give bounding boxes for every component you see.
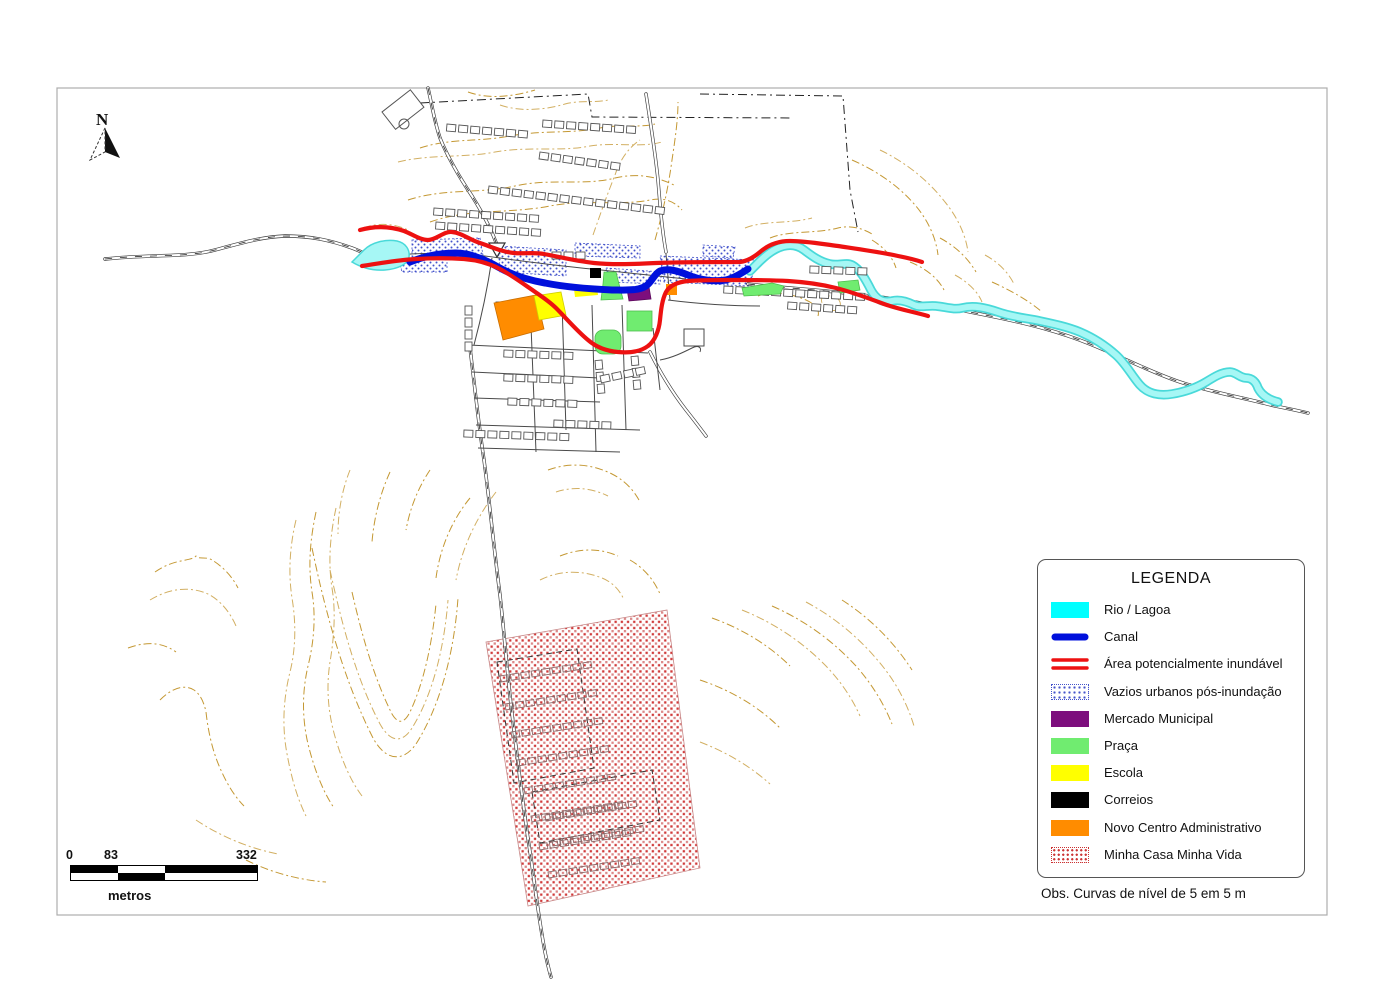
north-label: N <box>96 110 108 130</box>
legend-item-novo-centro: Novo Centro Administrativo <box>1038 815 1304 842</box>
scale-unit: metros <box>108 888 151 903</box>
legend-item-vazios-urbanos: Vazios urbanos pós-inundação <box>1038 679 1304 706</box>
scale-bar-graphic <box>70 865 258 881</box>
correios-swatch <box>1051 792 1089 808</box>
scale-tick-332: 332 <box>236 848 257 862</box>
area-inundavel-swatch <box>1051 656 1089 672</box>
legend-item-canal: Canal <box>1038 624 1304 651</box>
contour-note: Obs. Curvas de nível de 5 em 5 m <box>1041 886 1246 901</box>
correios-area <box>590 268 601 278</box>
praca-swatch <box>1051 738 1089 754</box>
legend-item-praca: Praça <box>1038 733 1304 760</box>
legend-item-escola: Escola <box>1038 760 1304 787</box>
legend-item-area-inundavel: Área potencialmente inundável <box>1038 651 1304 678</box>
vazios-urbanos-swatch <box>1051 684 1089 700</box>
legend-items: Rio / Lagoa Canal Área potencialmente in… <box>1038 597 1304 869</box>
praca-area-2 <box>627 311 652 331</box>
escola-swatch <box>1051 765 1089 781</box>
legend-item-rio-lagoa: Rio / Lagoa <box>1038 597 1304 624</box>
legend-title: LEGENDA <box>1038 570 1304 588</box>
mercado-municipal-swatch <box>1051 711 1089 727</box>
map-figure: N 0 83 332 metros LEGENDA Rio / Lagoa Ca… <box>0 0 1385 981</box>
legend-item-minha-casa-minha-vida: Minha Casa Minha Vida <box>1038 842 1304 869</box>
novo-centro-swatch <box>1051 820 1089 836</box>
north-arrow: N <box>84 110 128 170</box>
scale-tick-0: 0 <box>66 848 73 862</box>
legend-item-correios: Correios <box>1038 787 1304 814</box>
legend-box: LEGENDA Rio / Lagoa Canal Área potencial… <box>1037 559 1305 878</box>
canal-swatch <box>1051 629 1089 645</box>
scale-bar: 0 83 332 metros <box>64 848 274 906</box>
minha-casa-minha-vida-swatch <box>1051 847 1089 863</box>
legend-item-mercado-municipal: Mercado Municipal <box>1038 706 1304 733</box>
scale-tick-83: 83 <box>104 848 118 862</box>
rio-lagoa-swatch <box>1051 602 1089 618</box>
